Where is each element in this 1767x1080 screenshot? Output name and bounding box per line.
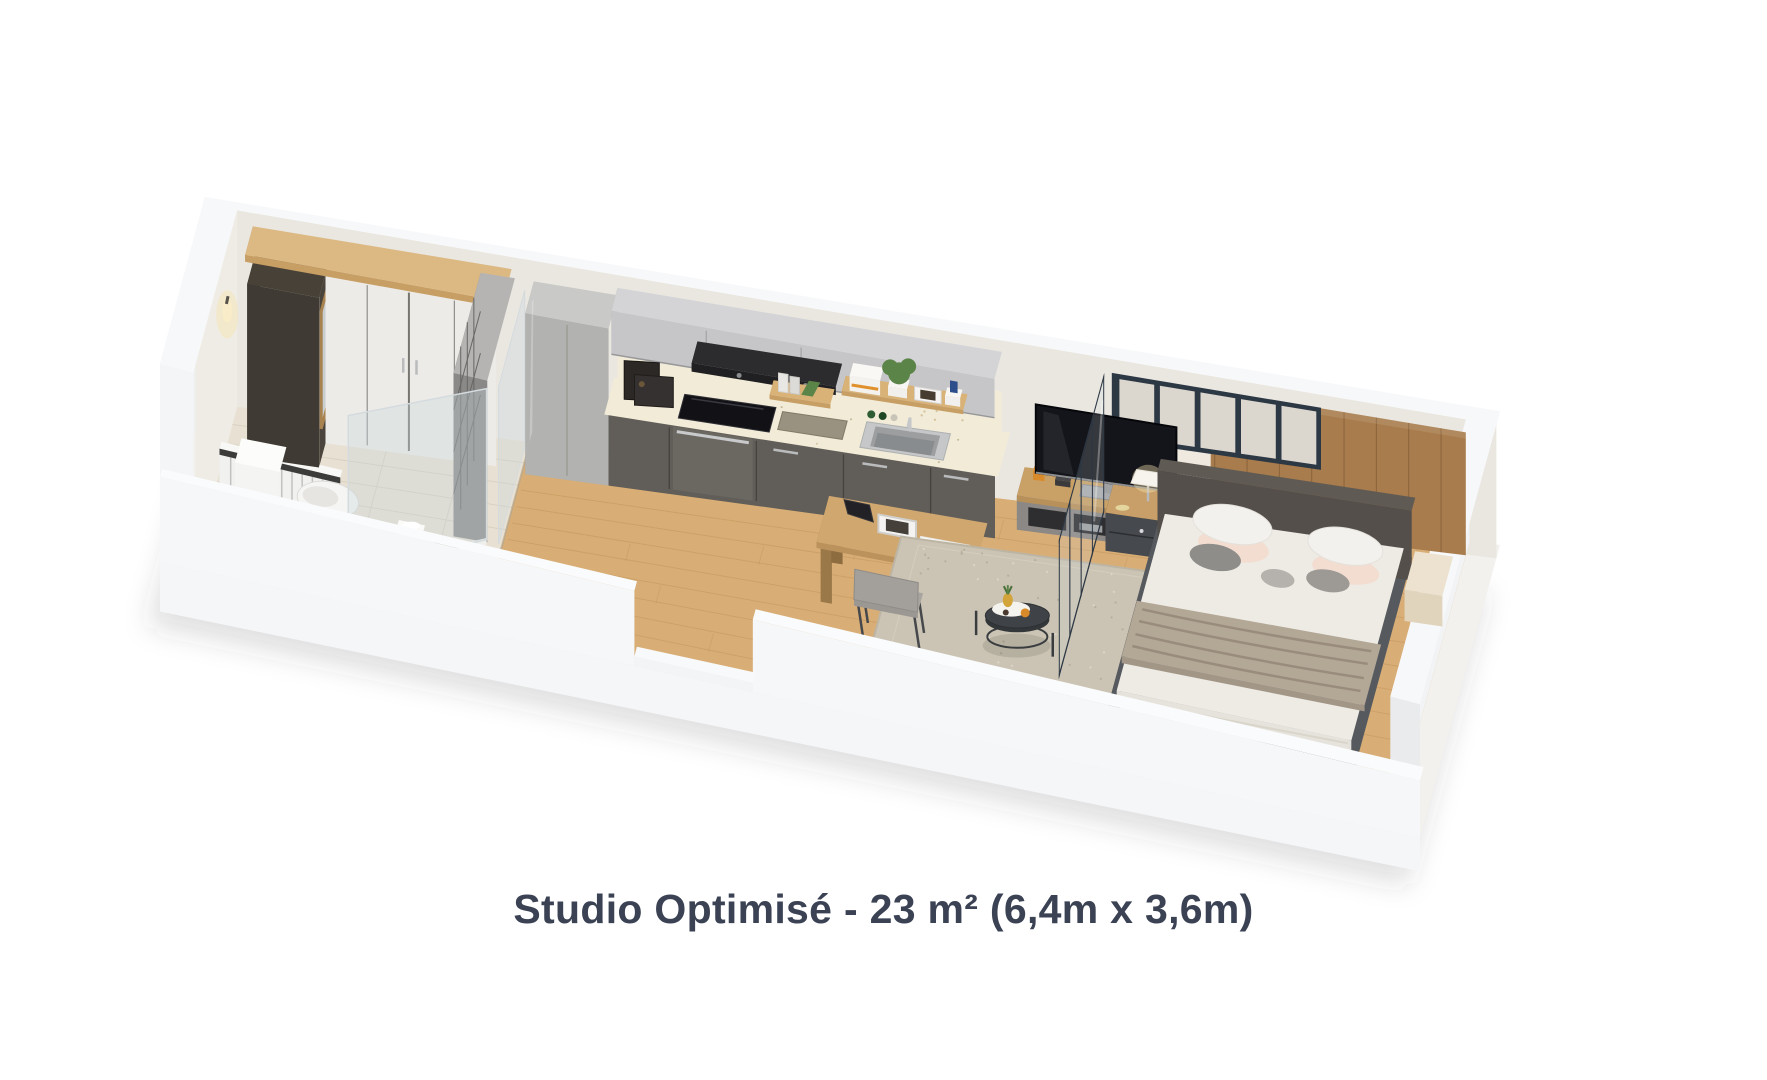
fridge-unit xyxy=(525,281,617,485)
caption: Studio Optimisé - 23 m² (6,4m x 3,6m) xyxy=(513,886,1253,933)
page: Studio Optimisé - 23 m² (6,4m x 3,6m) xyxy=(0,0,1767,1080)
wall-lamp xyxy=(216,290,238,338)
